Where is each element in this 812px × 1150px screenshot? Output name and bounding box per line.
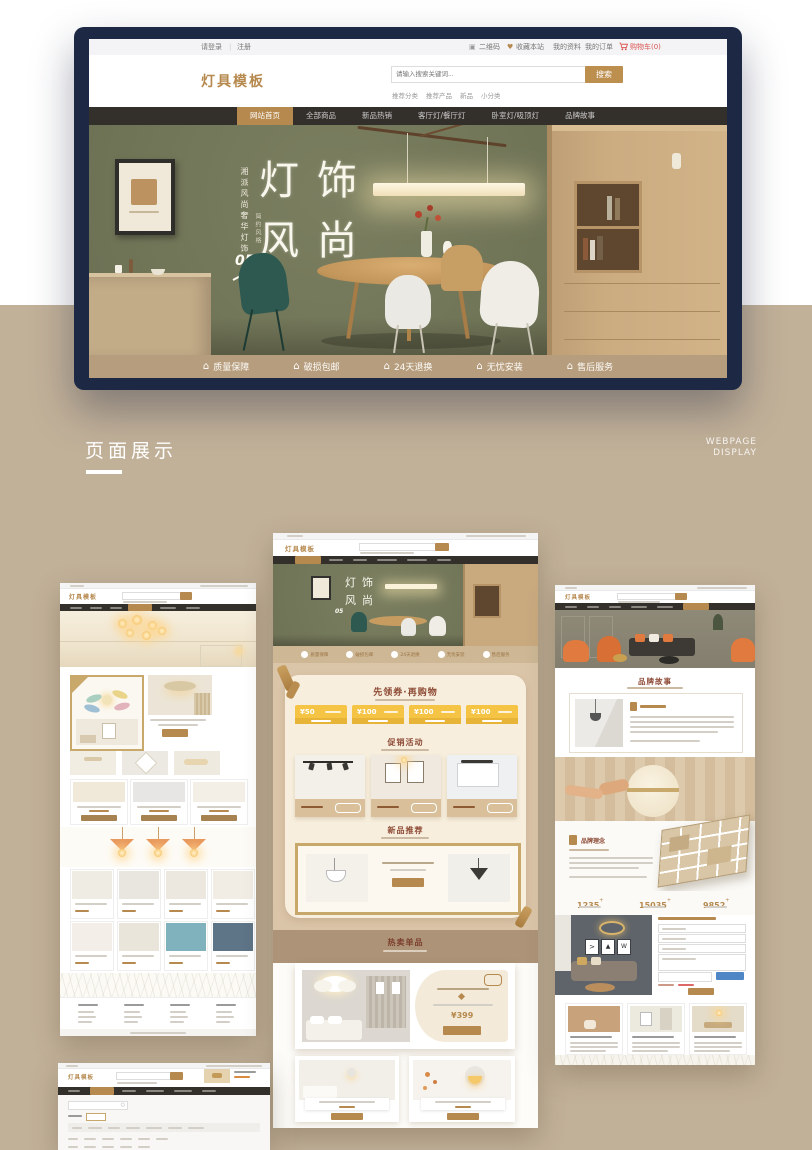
nav-placeholder — [609, 606, 621, 608]
text-placeholder — [169, 903, 201, 905]
window — [392, 982, 400, 994]
cabinet-drawer-line — [564, 311, 720, 312]
text-placeholder — [200, 585, 248, 587]
curtain — [366, 976, 406, 1028]
grid-card — [117, 921, 161, 971]
featured-price: ¥399 — [451, 1011, 473, 1020]
grid-card — [164, 869, 208, 919]
listing-search-field: ○ — [68, 1101, 128, 1110]
nav-item-bedroom[interactable]: 卧室灯/吸顶灯 — [479, 107, 553, 125]
footer-link — [170, 1016, 188, 1018]
footer-link — [170, 1021, 184, 1023]
nav-placeholder — [68, 1090, 80, 1092]
promo-image — [447, 755, 517, 799]
footer-link — [216, 1021, 230, 1023]
form-submit-button — [688, 988, 714, 995]
cart-link[interactable]: 购物车(0) — [630, 39, 661, 55]
text-placeholder — [565, 587, 577, 589]
book — [597, 236, 603, 260]
footer-link — [170, 1011, 186, 1013]
plant-decor — [713, 614, 723, 630]
section-title-underline — [86, 470, 122, 474]
text-placeholder — [122, 903, 154, 905]
filter-option — [108, 1127, 120, 1129]
service-label: 无忧安装 — [447, 652, 465, 658]
grid-card — [117, 869, 161, 919]
coupon: ¥100 — [409, 705, 461, 724]
room-photo — [76, 719, 138, 745]
subtitle-placeholder — [627, 687, 683, 689]
captcha-button — [716, 972, 744, 980]
text-placeholder — [694, 1050, 730, 1052]
mini-hero-lounge — [555, 610, 755, 668]
story-image — [575, 699, 623, 747]
service-item: ⌂ 无忧安装 — [476, 360, 522, 373]
browser-mockup: 请登录 | 注册 ▣ 二维码 ♥ 收藏本站 我的资料 我的订单 购物车(0) 灯… — [74, 27, 742, 390]
house-icon: ⌂ — [203, 361, 209, 372]
promo-image — [295, 755, 365, 799]
flower-dot — [415, 211, 422, 218]
nav-item-home[interactable]: 网站首页 — [237, 107, 293, 125]
fan-blade — [85, 693, 102, 705]
floorplan-3d — [658, 814, 751, 887]
site-nav: 网站首页 全部商品 新品热销 客厅灯/餐厅灯 卧室灯/吸顶灯 品牌故事 — [89, 107, 727, 125]
hero-title-char: 风 — [345, 592, 358, 608]
promo-wave-section: 先领券·再购物 ¥50 ¥100 ¥100 ¥100 — [273, 663, 538, 930]
mini-search — [359, 543, 437, 551]
search-input[interactable] — [391, 66, 587, 83]
mini-hero-green: 灯 饰 风 尚 05 — [273, 564, 538, 646]
promo-card-footer — [447, 799, 517, 817]
armchair-orange — [563, 640, 589, 662]
service-label: 售后服务 — [492, 652, 510, 658]
art-frame: > — [585, 939, 599, 955]
coupon-note — [384, 711, 398, 713]
house-icon: ⌂ — [293, 361, 299, 372]
article-card — [565, 1003, 623, 1055]
bed-white — [303, 1086, 337, 1098]
subtitle-placeholder — [569, 849, 609, 851]
price-placeholder — [75, 910, 89, 912]
promo-title: 促销活动 — [273, 737, 538, 748]
photo-furniture-detail — [80, 735, 96, 743]
pendant-silhouette-cord — [595, 699, 596, 713]
price-placeholder — [377, 806, 399, 808]
nav-placeholder — [70, 607, 82, 609]
wall-lamp-glow — [236, 647, 242, 655]
hot-link[interactable]: 推荐分类 — [392, 90, 418, 100]
mini-services: 质量保障 破损包邮 24天退换 无忧安装 售后服务 — [273, 646, 538, 663]
price-placeholder — [169, 910, 183, 912]
page-preview-partial[interactable]: 灯具模板 ○ — [58, 1063, 270, 1150]
nav-placeholder — [329, 559, 343, 561]
grid-card — [211, 921, 255, 971]
stat-suffix: + — [667, 898, 671, 904]
product-image — [213, 923, 253, 951]
grid-card — [70, 921, 114, 971]
pendant-sketch-shade — [470, 868, 488, 880]
hero-side-text: 湘派风尚奢华灯饰 — [239, 167, 250, 255]
nav-item-products[interactable]: 全部商品 — [293, 107, 349, 125]
text-placeholder — [570, 1042, 618, 1044]
product-card — [70, 779, 128, 825]
mini-search — [617, 593, 677, 600]
product-image — [119, 923, 159, 951]
section-title: 页面展示 — [85, 436, 177, 463]
filter-option — [156, 1138, 168, 1140]
product-card — [130, 779, 188, 825]
text-placeholder — [569, 867, 639, 869]
story-title: 品牌故事 — [555, 676, 755, 687]
price-placeholder — [216, 962, 230, 964]
pendant-bulb — [118, 849, 126, 857]
armchair-orange — [731, 638, 755, 662]
nav-active-chip — [128, 604, 152, 611]
text-placeholder — [632, 1046, 680, 1048]
qrcode-link[interactable]: 二维码 — [479, 39, 500, 55]
flower-sprig — [425, 1072, 430, 1077]
agree-placeholder — [658, 984, 674, 986]
bottle-decor — [129, 259, 133, 273]
mini-logo: 灯具模板 — [565, 593, 591, 601]
new-showcase-frame — [295, 843, 521, 915]
lamp-hint — [135, 752, 158, 775]
section-subtitle-line2: DISPLAY — [706, 448, 757, 459]
coupon-title: 先领券·再购物 — [273, 685, 538, 698]
footer-link — [216, 1016, 234, 1018]
hot-link[interactable]: 新品 — [460, 90, 473, 100]
nav-placeholder — [160, 607, 176, 609]
mini-chair-teal — [351, 612, 367, 632]
service-label: 无忧安装 — [487, 360, 523, 373]
mini-search — [116, 1072, 172, 1080]
filter-option — [138, 1146, 150, 1148]
fan-lamp-hub — [102, 695, 112, 705]
promo-image — [371, 755, 441, 799]
text-placeholder — [630, 726, 734, 728]
nav-placeholder — [407, 559, 427, 561]
mini-floor-shade — [273, 634, 463, 646]
branch-decor — [357, 126, 506, 147]
service-item: 破损包邮 — [346, 651, 373, 658]
nav-placeholder — [587, 606, 599, 608]
mini-copyright — [60, 1029, 256, 1036]
hot-card — [295, 1056, 399, 1122]
subtitle-placeholder — [381, 749, 429, 751]
mini-topbar — [60, 583, 256, 589]
article-image — [692, 1006, 744, 1032]
cabinet-shelf — [574, 181, 642, 273]
cabinet-drawer-line — [564, 339, 720, 340]
chandelier-bulb — [132, 615, 142, 625]
nav-placeholder — [146, 1090, 164, 1092]
service-circle-icon — [483, 651, 490, 658]
story-card-title — [640, 705, 666, 708]
form-field — [658, 944, 746, 953]
pendant-sketch — [478, 858, 479, 868]
nav-placeholder — [174, 1090, 192, 1092]
price-placeholder — [122, 962, 136, 964]
mini-search — [122, 592, 182, 600]
filter-option — [102, 1146, 114, 1148]
house-icon: ⌂ — [476, 361, 482, 372]
promo-buy-pill — [335, 803, 361, 813]
article-image — [630, 1006, 682, 1032]
hot-link[interactable]: 小分类 — [481, 90, 501, 100]
nav-placeholder — [657, 606, 673, 608]
flower-dot — [435, 215, 441, 221]
mini-hero-ceiling — [60, 611, 256, 667]
page-preview-right[interactable]: 灯具模板 品牌故事 — [555, 585, 755, 1065]
filter-label-placeholder — [68, 1115, 82, 1117]
new-title: 新品推荐 — [273, 825, 538, 836]
fan-blade — [113, 701, 130, 712]
hero-title-char: 尚 — [362, 592, 375, 608]
mini-footer — [60, 997, 256, 1030]
filter-option — [84, 1146, 96, 1148]
product-image — [133, 782, 185, 802]
hero-title: 灯 饰 风 尚 — [259, 155, 363, 267]
cushion-cream — [591, 957, 601, 965]
footer-link — [124, 1021, 138, 1023]
poster-canvas: 请登录 | 注册 ▣ 二维码 ♥ 收藏本站 我的资料 我的订单 购物车(0) 灯… — [0, 0, 812, 1150]
product-image — [72, 871, 112, 899]
captcha-field — [658, 972, 712, 982]
stat-label-placeholder — [705, 906, 727, 908]
coupon-note — [441, 711, 455, 713]
text-placeholder — [382, 862, 434, 864]
mini-logo: 灯具模板 — [69, 592, 97, 601]
cabinet-cornice — [552, 125, 727, 131]
text-placeholder — [158, 724, 198, 726]
footer-col-header — [78, 1004, 98, 1006]
filter-option — [84, 1138, 96, 1140]
chandelier-bulb — [142, 631, 151, 640]
qr-icon: ▣ — [469, 39, 476, 55]
site-logo[interactable]: 灯具模板 — [201, 71, 265, 91]
filter-option — [138, 1138, 150, 1140]
hot-link[interactable]: 推荐产品 — [426, 90, 452, 100]
nav-item-new[interactable]: 新品热销 — [349, 107, 405, 125]
text-placeholder — [569, 857, 653, 859]
text-placeholder — [435, 1101, 491, 1103]
stat-suffix: + — [599, 898, 603, 904]
hero-title-char: 饰 — [317, 155, 363, 207]
promo-card-footer — [295, 799, 365, 817]
search-button[interactable]: 搜索 — [585, 66, 623, 83]
orders-link[interactable]: 我的订单 — [585, 39, 613, 55]
hero-banner[interactable]: 湘派风尚奢华灯饰 简约风格 05 灯 饰 风 尚 — [89, 125, 727, 355]
text-placeholder — [466, 535, 526, 537]
chair-hint — [584, 1020, 596, 1029]
hero-title-char: 饰 — [362, 574, 375, 590]
promo-buy-pill — [487, 803, 513, 813]
small-lamp — [401, 757, 407, 763]
mini-chair-white — [429, 616, 446, 636]
nav-placeholder — [122, 1090, 136, 1092]
page-preview-left[interactable]: 灯具模板 — [60, 583, 256, 1036]
mini-search-button — [435, 543, 449, 551]
hot-band: 热卖单品 — [273, 930, 538, 963]
hot-card — [409, 1056, 515, 1122]
text-placeholder — [570, 1050, 606, 1052]
mini-buy-button — [81, 815, 117, 821]
nav-placeholder — [186, 607, 200, 609]
nav-placeholder — [90, 607, 102, 609]
nav-placeholder — [377, 559, 397, 561]
claim-placeholder — [311, 720, 331, 722]
text-placeholder — [216, 955, 248, 957]
mini-nav — [60, 604, 256, 611]
arm — [564, 784, 603, 799]
text-placeholder — [75, 903, 107, 905]
flower-sprig — [423, 1086, 427, 1090]
stats-row: 1235+ 15035+ 9852+ — [555, 891, 755, 915]
price-placeholder — [455, 1106, 471, 1108]
coupon-claim-strip — [466, 718, 518, 724]
service-label: 24天退换 — [400, 652, 419, 658]
login-link[interactable]: 请登录 — [201, 39, 222, 55]
text-placeholder — [433, 1004, 493, 1006]
service-item: ⌂ 售后服务 — [567, 360, 613, 373]
hot-card-strip — [421, 1098, 505, 1110]
product-card — [190, 779, 248, 825]
coupon-note — [325, 711, 341, 713]
grid-card — [164, 921, 208, 971]
text-placeholder — [694, 1046, 742, 1048]
service-item: ⌂ 24天退换 — [384, 360, 433, 373]
text-placeholder — [206, 1065, 262, 1067]
product-image — [166, 923, 206, 951]
text-placeholder — [630, 740, 700, 742]
form-field — [658, 934, 746, 943]
book — [583, 238, 588, 260]
filter-option — [102, 1138, 114, 1140]
product-image — [193, 782, 245, 802]
track-spot — [327, 763, 333, 771]
hot-links: 推荐分类 推荐产品 新品 小分类 — [392, 90, 501, 100]
claim-placeholder — [368, 720, 388, 722]
article-card — [627, 1003, 685, 1055]
hot-title: 热卖单品 — [273, 937, 538, 948]
text-placeholder — [360, 552, 414, 554]
footer-link — [124, 1016, 142, 1018]
mirror-lamp-bar — [461, 760, 493, 763]
text-placeholder — [66, 1065, 78, 1067]
showcase-image — [306, 854, 368, 902]
footer-link — [78, 1016, 96, 1018]
text-placeholder — [197, 806, 241, 808]
text-placeholder — [570, 1046, 618, 1048]
service-label: 售后服务 — [577, 360, 613, 373]
wall-spot-lamp — [347, 1068, 356, 1077]
hero-index-number: 05 — [335, 608, 343, 615]
service-item: 无忧安装 — [438, 651, 465, 658]
stat-item: 15035+ — [639, 893, 671, 912]
service-item: ⌂ 破损包邮 — [293, 360, 339, 373]
profile-link[interactable]: 我的资料 — [553, 39, 581, 55]
magnifier-icon: ○ — [121, 1102, 125, 1108]
wall-art-line — [129, 211, 159, 213]
form-textarea — [658, 954, 746, 971]
site-header: 灯具模板 搜索 推荐分类 推荐产品 新品 小分类 — [89, 55, 727, 107]
hot-card-photo — [299, 1060, 395, 1100]
product-image — [73, 782, 125, 802]
price-placeholder — [75, 962, 89, 964]
book — [590, 240, 595, 260]
photo-frame-detail — [102, 723, 116, 739]
mini-buy-button — [162, 729, 188, 737]
listing-body: ○ — [58, 1095, 270, 1150]
text-placeholder — [630, 721, 734, 723]
nav-placeholder — [437, 559, 451, 561]
service-circle-icon — [301, 651, 308, 658]
nav-item-living[interactable]: 客厅灯/餐厅灯 — [405, 107, 479, 125]
service-label: 破损包邮 — [355, 652, 373, 658]
mini-table — [369, 616, 427, 626]
pendant-sketch — [334, 858, 335, 870]
chandelier-bulb — [158, 627, 166, 635]
chandelier-bulb — [148, 621, 157, 630]
nav-item-brand[interactable]: 品牌故事 — [552, 107, 608, 125]
grid-card — [70, 869, 114, 919]
favorite-link[interactable]: 收藏本站 — [516, 39, 544, 55]
service-label: 24天退换 — [394, 360, 432, 373]
cabinet — [547, 125, 727, 355]
mini-buy-button — [141, 815, 177, 821]
gold-side-table — [613, 654, 627, 662]
pillow-white — [649, 634, 659, 642]
flower-sprig — [433, 1080, 437, 1084]
mini-nav — [555, 603, 755, 610]
promo-card — [371, 755, 441, 817]
diamond-icon — [458, 993, 465, 1000]
lamp-hint — [84, 757, 102, 761]
filter-chip — [86, 1113, 106, 1121]
text-placeholder — [287, 535, 303, 537]
coupon-value: ¥100 — [357, 708, 376, 716]
wall-art-frame — [115, 159, 175, 235]
mini-nav — [58, 1087, 270, 1095]
text-placeholder — [630, 716, 734, 718]
featured-card-frame — [70, 675, 144, 751]
register-link[interactable]: 注册 — [237, 39, 251, 55]
service-circle-icon — [346, 651, 353, 658]
mini-search-button — [675, 593, 687, 600]
copyright-placeholder — [130, 1032, 186, 1034]
mini-lamp-bar — [385, 584, 437, 589]
stat-suffix: + — [725, 898, 729, 904]
footer-link — [78, 1021, 92, 1023]
service-label: 质量保障 — [213, 360, 249, 373]
price-placeholder — [301, 806, 323, 808]
page-preview-center[interactable]: 灯具模板 灯 饰 风 尚 05 — [273, 533, 538, 1128]
price-placeholder — [453, 806, 475, 808]
article-title-placeholder — [694, 1036, 736, 1038]
nav-placeholder — [565, 606, 577, 608]
window-light — [555, 915, 571, 971]
field-hint — [662, 938, 686, 940]
price-placeholder — [209, 810, 229, 812]
service-label: 破损包邮 — [304, 360, 340, 373]
fan-blade — [111, 688, 128, 700]
pendant-sketch-shade — [326, 870, 346, 882]
section-subtitle-line1: WEBPAGE — [706, 437, 757, 448]
fan-blade — [83, 703, 100, 714]
featured-badge — [484, 974, 502, 986]
text-placeholder — [569, 876, 647, 878]
living-room-photo: > ▲ W — [555, 915, 652, 995]
